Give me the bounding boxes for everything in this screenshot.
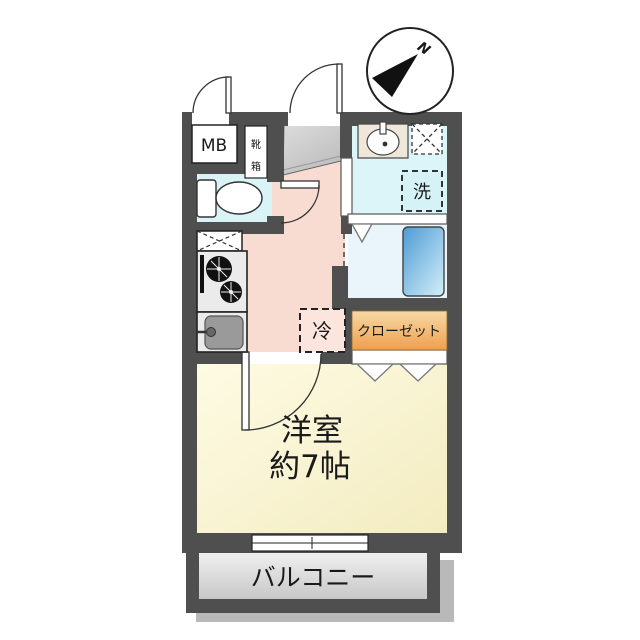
entrance-door-arc	[290, 64, 339, 113]
toilet-tank	[197, 180, 216, 217]
kitchen-counter	[197, 231, 247, 352]
partition-washroom-bathroom	[348, 214, 447, 224]
opening-entrance-door	[288, 112, 340, 126]
compass-icon: N	[367, 28, 453, 114]
balcony-frame-bottom	[186, 599, 440, 613]
kitchen-sink-icon	[197, 312, 247, 352]
toilet-icon	[197, 180, 262, 217]
refrigerator-label: 冷	[312, 319, 332, 343]
room-door-leaf	[242, 352, 249, 430]
closet-door-track	[352, 350, 447, 364]
shoe-box-label-2: 箱	[251, 160, 261, 173]
balcony-shadow-bottom	[196, 613, 454, 622]
wall-right	[447, 112, 462, 553]
vent-box-kitchen-icon	[197, 231, 242, 251]
wall-left	[182, 112, 197, 553]
toilet-door-leaf	[281, 181, 319, 188]
bathtub-icon	[403, 227, 444, 296]
partition-hall-washroom	[341, 158, 352, 216]
washing-machine-label: 洗	[413, 182, 431, 203]
sliding-window-icon	[252, 535, 368, 551]
mb-door-leaf	[226, 77, 231, 113]
toilet-bowl	[216, 182, 262, 214]
closet-label: クローゼット	[357, 324, 441, 340]
closet: クローゼット	[352, 311, 447, 350]
opening-mb-door	[192, 112, 229, 126]
room-name-label: 洋室	[281, 413, 343, 449]
balcony: バルコニー	[186, 553, 454, 622]
wall-genkan-right	[340, 112, 352, 158]
balcony-shadow-right	[440, 560, 454, 621]
shoe-box: 靴 箱	[245, 126, 267, 178]
floor-plan-page: MB 靴 箱 洗 クローゼット	[0, 0, 640, 640]
refrigerator-space: 冷	[300, 309, 345, 352]
wall-room-top-right	[321, 352, 352, 364]
western-room: 洋室 約7帖	[269, 413, 351, 485]
washbasin-icon	[358, 122, 408, 158]
washing-machine-space: 洗	[402, 171, 442, 211]
meter-box: MB	[192, 125, 237, 163]
shoe-box-label-1: 靴	[251, 138, 261, 151]
floor-plan-svg: MB 靴 箱 洗 クローゼット	[0, 0, 640, 640]
entrance-door-leaf	[337, 64, 342, 113]
meter-box-label: MB	[201, 136, 227, 156]
balcony-label: バルコニー	[251, 563, 376, 592]
wall-room-top-left	[197, 352, 243, 364]
vent-box-washroom-icon	[412, 124, 442, 154]
mb-door-arc	[193, 77, 229, 113]
wall-pier-toilet-bottom	[267, 216, 284, 234]
room-size-label: 約7帖	[269, 449, 351, 485]
stove-icon	[197, 251, 247, 312]
